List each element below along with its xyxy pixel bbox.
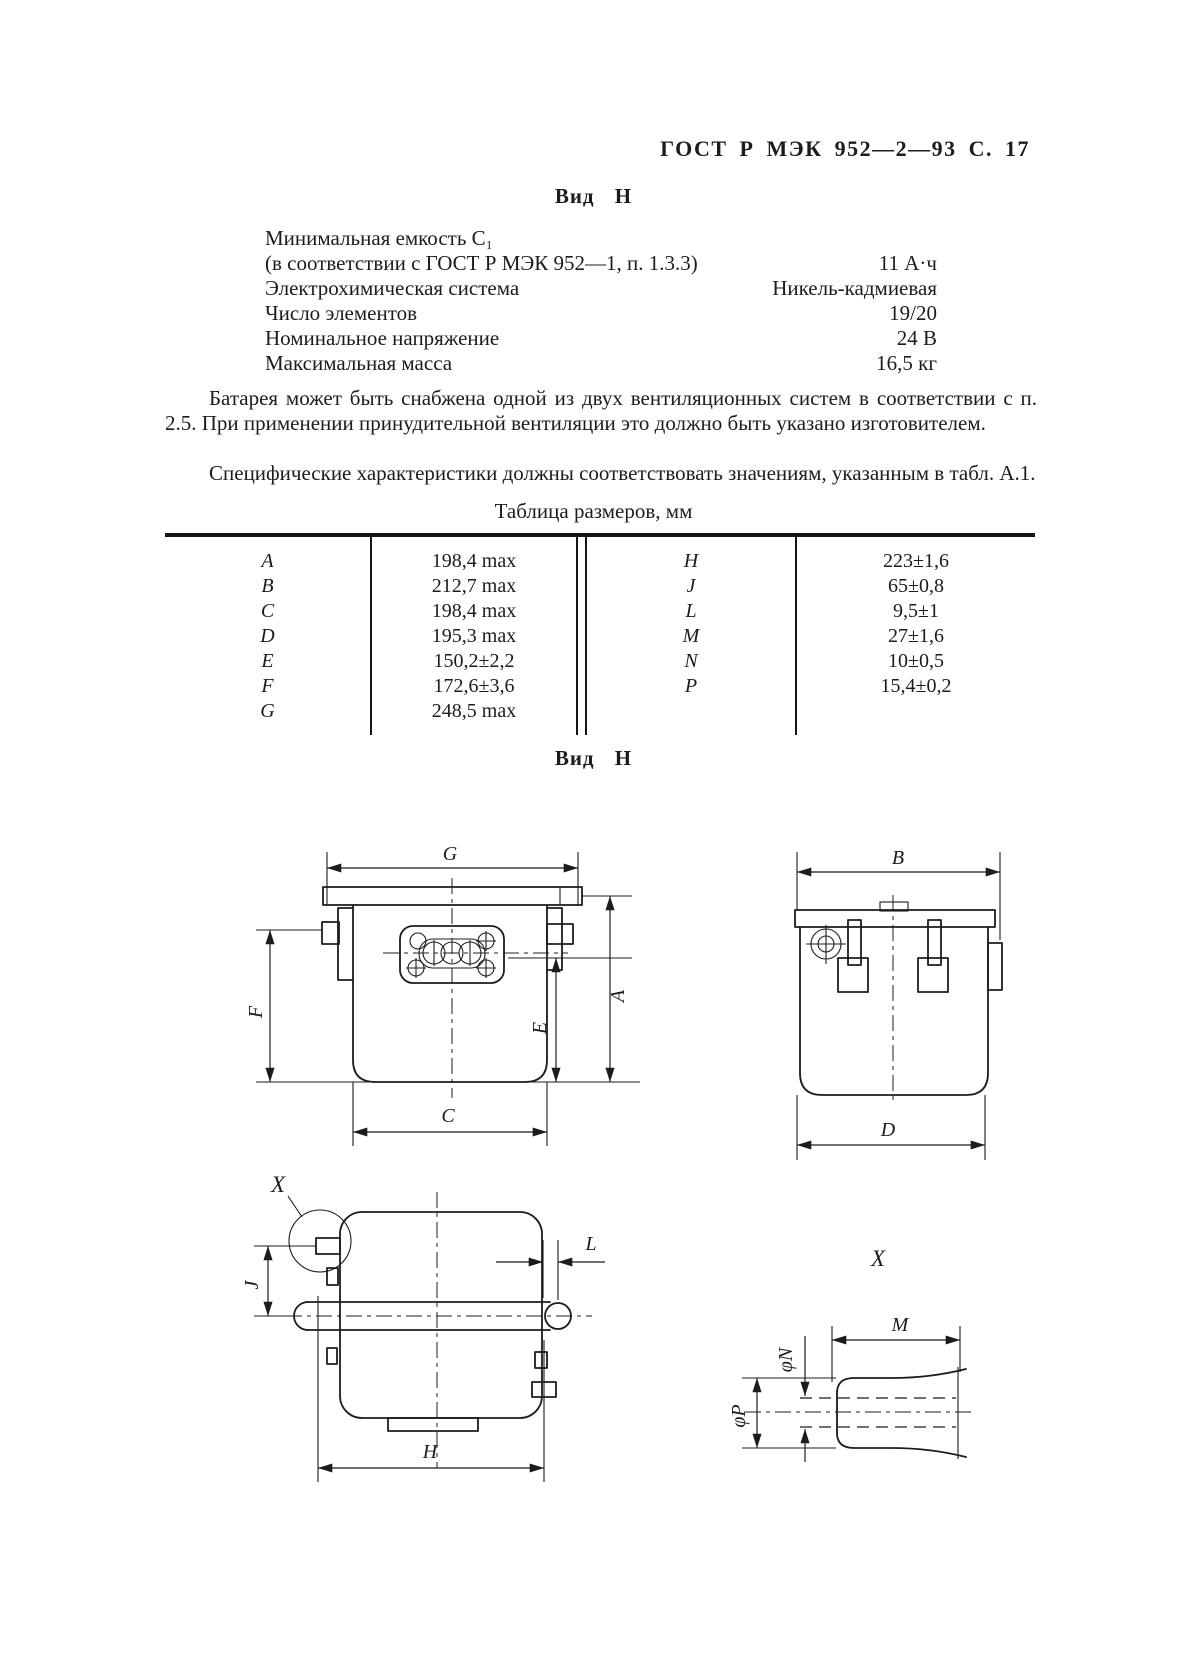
detail-x-drawing: X M φN φP [728, 1246, 976, 1462]
spec-row: Минимальная емкость С₁ [265, 226, 937, 251]
paragraph-ventilation: Батарея может быть снабжена одной из дву… [165, 386, 1037, 436]
dim-letter: B [165, 574, 370, 599]
spec-label: Номинальное напряжение [265, 326, 499, 351]
view-heading-bottom: Вид Н [0, 746, 1187, 771]
size-table-right-values: 223±1,6 65±0,8 9,5±1 27±1,6 10±0,5 15,4±… [797, 549, 1035, 735]
size-table-left-labels: A B C D E F G [165, 549, 370, 735]
dim-value: 150,2±2,2 [372, 649, 576, 674]
dim-letter: C [165, 599, 370, 624]
size-table-left-values: 198,4 max 212,7 max 198,4 max 195,3 max … [372, 549, 576, 735]
dim-value: 198,4 max [372, 549, 576, 574]
spec-value: Никель-кадмиевая [772, 276, 937, 301]
spec-value: 16,5 кг [876, 351, 937, 376]
dim-value: 10±0,5 [797, 649, 1035, 674]
dim-value: 198,4 max [372, 599, 576, 624]
dim-letter: G [165, 699, 370, 724]
dim-value: 223±1,6 [797, 549, 1035, 574]
dim-value: 65±0,8 [797, 574, 1035, 599]
size-table-right-labels: H J L M N P [587, 549, 795, 735]
size-table-title: Таблица размеров, мм [0, 499, 1187, 524]
table-double-rule [576, 537, 587, 735]
dim-letter: H [587, 549, 795, 574]
spec-label: Минимальная емкость С₁ [265, 226, 493, 251]
spec-list: Минимальная емкость С₁ (в соответствии с… [265, 226, 937, 376]
dim-letter: L [587, 599, 795, 624]
dim-value: 212,7 max [372, 574, 576, 599]
spec-row: (в соответствии с ГОСТ Р МЭК 952—1, п. 1… [265, 251, 937, 276]
side-view-drawing: B D [795, 847, 1002, 1160]
spec-value: 24 В [897, 326, 937, 351]
dim-value: 172,6±3,6 [372, 674, 576, 699]
spec-row: Электрохимическая система Никель-кадмиев… [265, 276, 937, 301]
dim-letter: P [587, 674, 795, 699]
spec-row: Номинальное напряжение 24 В [265, 326, 937, 351]
dim-letter: F [165, 674, 370, 699]
size-table: A B C D E F G 198,4 max 212,7 max 198,4 … [165, 533, 1035, 735]
spec-label: Максимальная масса [265, 351, 452, 376]
dim-label-m: M [891, 1314, 910, 1336]
document-page: ГОСТ Р МЭК 952—2—93 С. 17 Вид Н Минималь… [0, 0, 1187, 1679]
view-heading-top: Вид Н [0, 184, 1187, 209]
dim-label-d: D [880, 1119, 896, 1141]
spec-label: Электрохимическая система [265, 276, 519, 301]
dim-letter: M [587, 624, 795, 649]
spec-row: Максимальная масса 16,5 кг [265, 351, 937, 376]
detail-x-label: X [870, 1246, 886, 1271]
dim-label-h: H [422, 1441, 439, 1463]
dim-label-phi-n: φN [775, 1346, 797, 1372]
size-table-body: A B C D E F G 198,4 max 212,7 max 198,4 … [165, 537, 1035, 735]
dim-value: 27±1,6 [797, 624, 1035, 649]
dim-letter: D [165, 624, 370, 649]
spec-row: Число элементов 19/20 [265, 301, 937, 326]
dim-label-e: E [529, 1022, 551, 1035]
dim-label-phi-p: φP [728, 1404, 750, 1427]
dim-value: 9,5±1 [797, 599, 1035, 624]
dim-label-a: A [607, 989, 629, 1004]
dim-letter: N [587, 649, 795, 674]
spec-value: 19/20 [889, 301, 937, 326]
detail-callout-label: X [270, 1172, 286, 1197]
top-view-drawing: X J L [241, 1172, 605, 1482]
dim-letter: A [165, 549, 370, 574]
dim-label-g: G [443, 843, 458, 865]
dim-label-f: F [245, 1005, 267, 1019]
dim-label-l: L [584, 1233, 596, 1255]
dim-label-b: B [892, 847, 904, 869]
spec-label: (в соответствии с ГОСТ Р МЭК 952—1, п. 1… [265, 251, 698, 276]
front-view-drawing: G [245, 843, 640, 1146]
page-header: ГОСТ Р МЭК 952—2—93 С. 17 [0, 136, 1030, 162]
dim-value: 195,3 max [372, 624, 576, 649]
spec-label: Число элементов [265, 301, 417, 326]
dim-letter: E [165, 649, 370, 674]
paragraph-specific: Специфические характеристики должны соот… [165, 461, 1037, 486]
dim-letter: J [587, 574, 795, 599]
dim-label-c: C [441, 1105, 455, 1127]
dim-label-j: J [241, 1279, 263, 1289]
spec-value: 11 А·ч [879, 251, 937, 276]
dim-value: 248,5 max [372, 699, 576, 724]
dim-value: 15,4±0,2 [797, 674, 1035, 699]
